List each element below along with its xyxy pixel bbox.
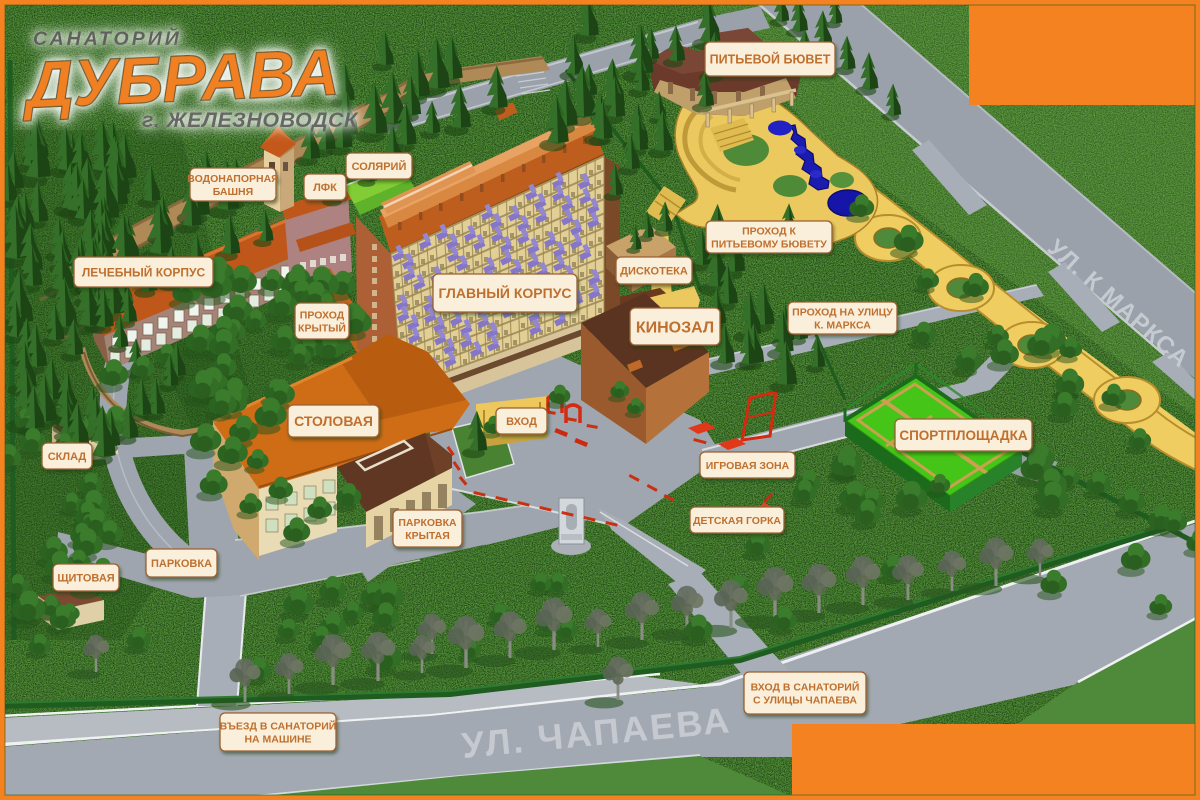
svg-text:ЛЕЧЕБНЫЙ КОРПУС: ЛЕЧЕБНЫЙ КОРПУС [82,264,206,279]
svg-text:ВХОД: ВХОД [506,416,537,428]
svg-text:ПРОХОД НА УЛИЦУ: ПРОХОД НА УЛИЦУ [792,306,893,318]
svg-text:КРЫТЫЙ: КРЫТЫЙ [298,321,346,334]
svg-text:ПРОХОД К: ПРОХОД К [742,225,796,237]
svg-text:ПАРКОВКА: ПАРКОВКА [151,558,212,570]
svg-text:ГЛАВНЫЙ КОРПУС: ГЛАВНЫЙ КОРПУС [438,284,571,301]
svg-text:КРЫТАЯ: КРЫТАЯ [405,530,450,542]
svg-text:СПОРТПЛОЩАДКА: СПОРТПЛОЩАДКА [899,428,1028,443]
svg-text:ПРОХОД: ПРОХОД [300,309,345,321]
svg-text:СОЛЯРИЙ: СОЛЯРИЙ [352,160,407,173]
svg-text:ПАРКОВКА: ПАРКОВКА [398,517,457,529]
svg-text:ЛФК: ЛФК [313,182,337,194]
svg-text:С УЛИЦЫ ЧАПАЕВА: С УЛИЦЫ ЧАПАЕВА [753,694,857,706]
svg-text:ЩИТОВАЯ: ЩИТОВАЯ [57,573,114,585]
svg-text:ПИТЬЕВОМУ БЮВЕТУ: ПИТЬЕВОМУ БЮВЕТУ [711,238,827,250]
svg-text:ДЕТСКАЯ ГОРКА: ДЕТСКАЯ ГОРКА [693,515,781,527]
svg-text:НА МАШИНЕ: НА МАШИНЕ [244,733,311,745]
svg-text:ДИСКОТЕКА: ДИСКОТЕКА [620,266,688,278]
svg-text:ВЪЕЗД В САНАТОРИЙ: ВЪЕЗД В САНАТОРИЙ [220,719,337,732]
svg-text:К. МАРКСА: К. МАРКСА [814,319,871,331]
svg-text:СКЛАД: СКЛАД [48,451,87,463]
svg-text:ВХОД В САНАТОРИЙ: ВХОД В САНАТОРИЙ [751,680,860,693]
svg-text:ИГРОВАЯ ЗОНА: ИГРОВАЯ ЗОНА [706,460,790,472]
svg-text:ВОДОНАПОРНАЯ: ВОДОНАПОРНАЯ [187,173,278,185]
svg-text:г. ЖЕЛЕЗНОВОДСК: г. ЖЕЛЕЗНОВОДСК [142,108,359,132]
svg-text:БАШНЯ: БАШНЯ [213,186,253,198]
svg-text:КИНОЗАЛ: КИНОЗАЛ [636,319,714,336]
svg-text:СТОЛОВАЯ: СТОЛОВАЯ [294,413,373,429]
svg-text:ПИТЬЕВОЙ БЮВЕТ: ПИТЬЕВОЙ БЮВЕТ [710,52,831,67]
